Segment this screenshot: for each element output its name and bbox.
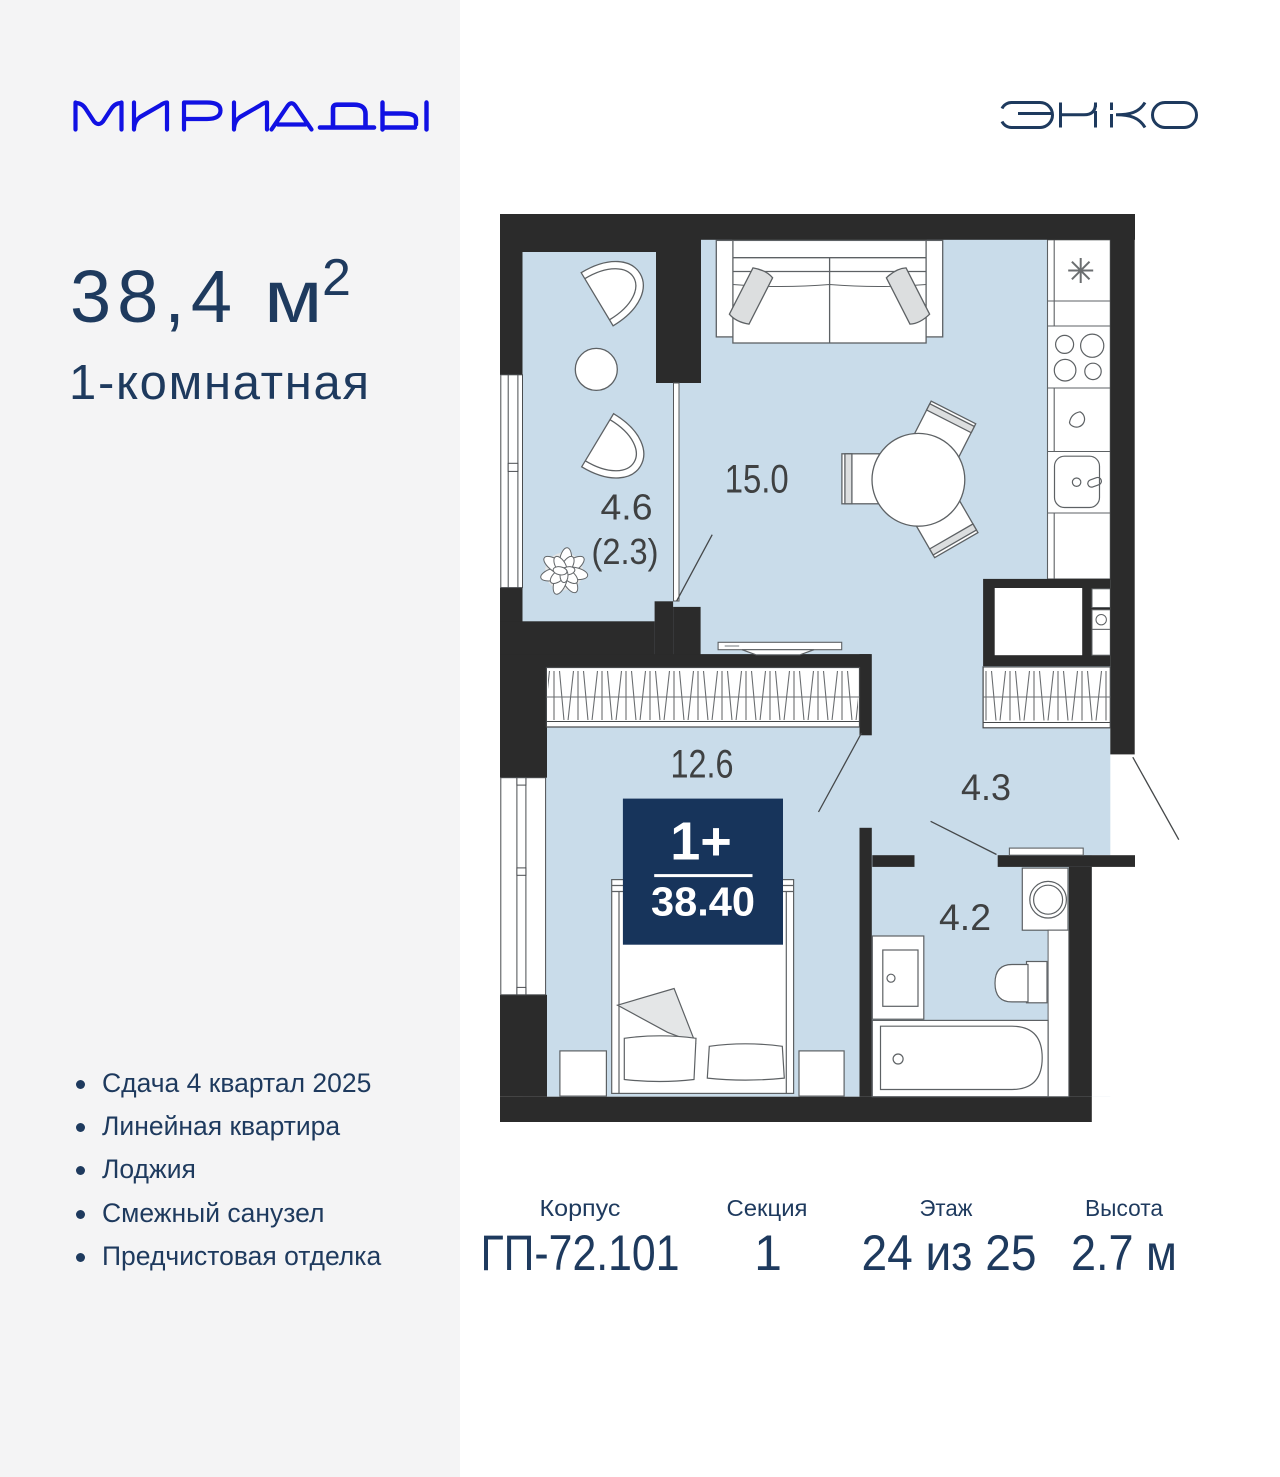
svg-text:24 из 25: 24 из 25 <box>862 1225 1037 1281</box>
svg-text:4.2: 4.2 <box>939 897 991 938</box>
svg-text:(2.3): (2.3) <box>592 531 659 572</box>
svg-text:Этаж: Этаж <box>920 1195 974 1221</box>
svg-text:1: 1 <box>754 1225 782 1281</box>
svg-text:Корпус: Корпус <box>540 1195 621 1221</box>
svg-text:2.7 м: 2.7 м <box>1071 1225 1177 1281</box>
svg-text:4.3: 4.3 <box>961 767 1011 808</box>
svg-text:15.0: 15.0 <box>725 458 789 502</box>
svg-text:ГП-72.101: ГП-72.101 <box>481 1225 680 1281</box>
svg-text:4.6: 4.6 <box>601 487 653 528</box>
svg-text:1+: 1+ <box>670 812 732 872</box>
svg-text:Высота: Высота <box>1085 1195 1163 1221</box>
svg-text:Секция: Секция <box>727 1195 808 1221</box>
svg-text:38.40: 38.40 <box>651 879 755 925</box>
svg-text:12.6: 12.6 <box>671 743 734 787</box>
